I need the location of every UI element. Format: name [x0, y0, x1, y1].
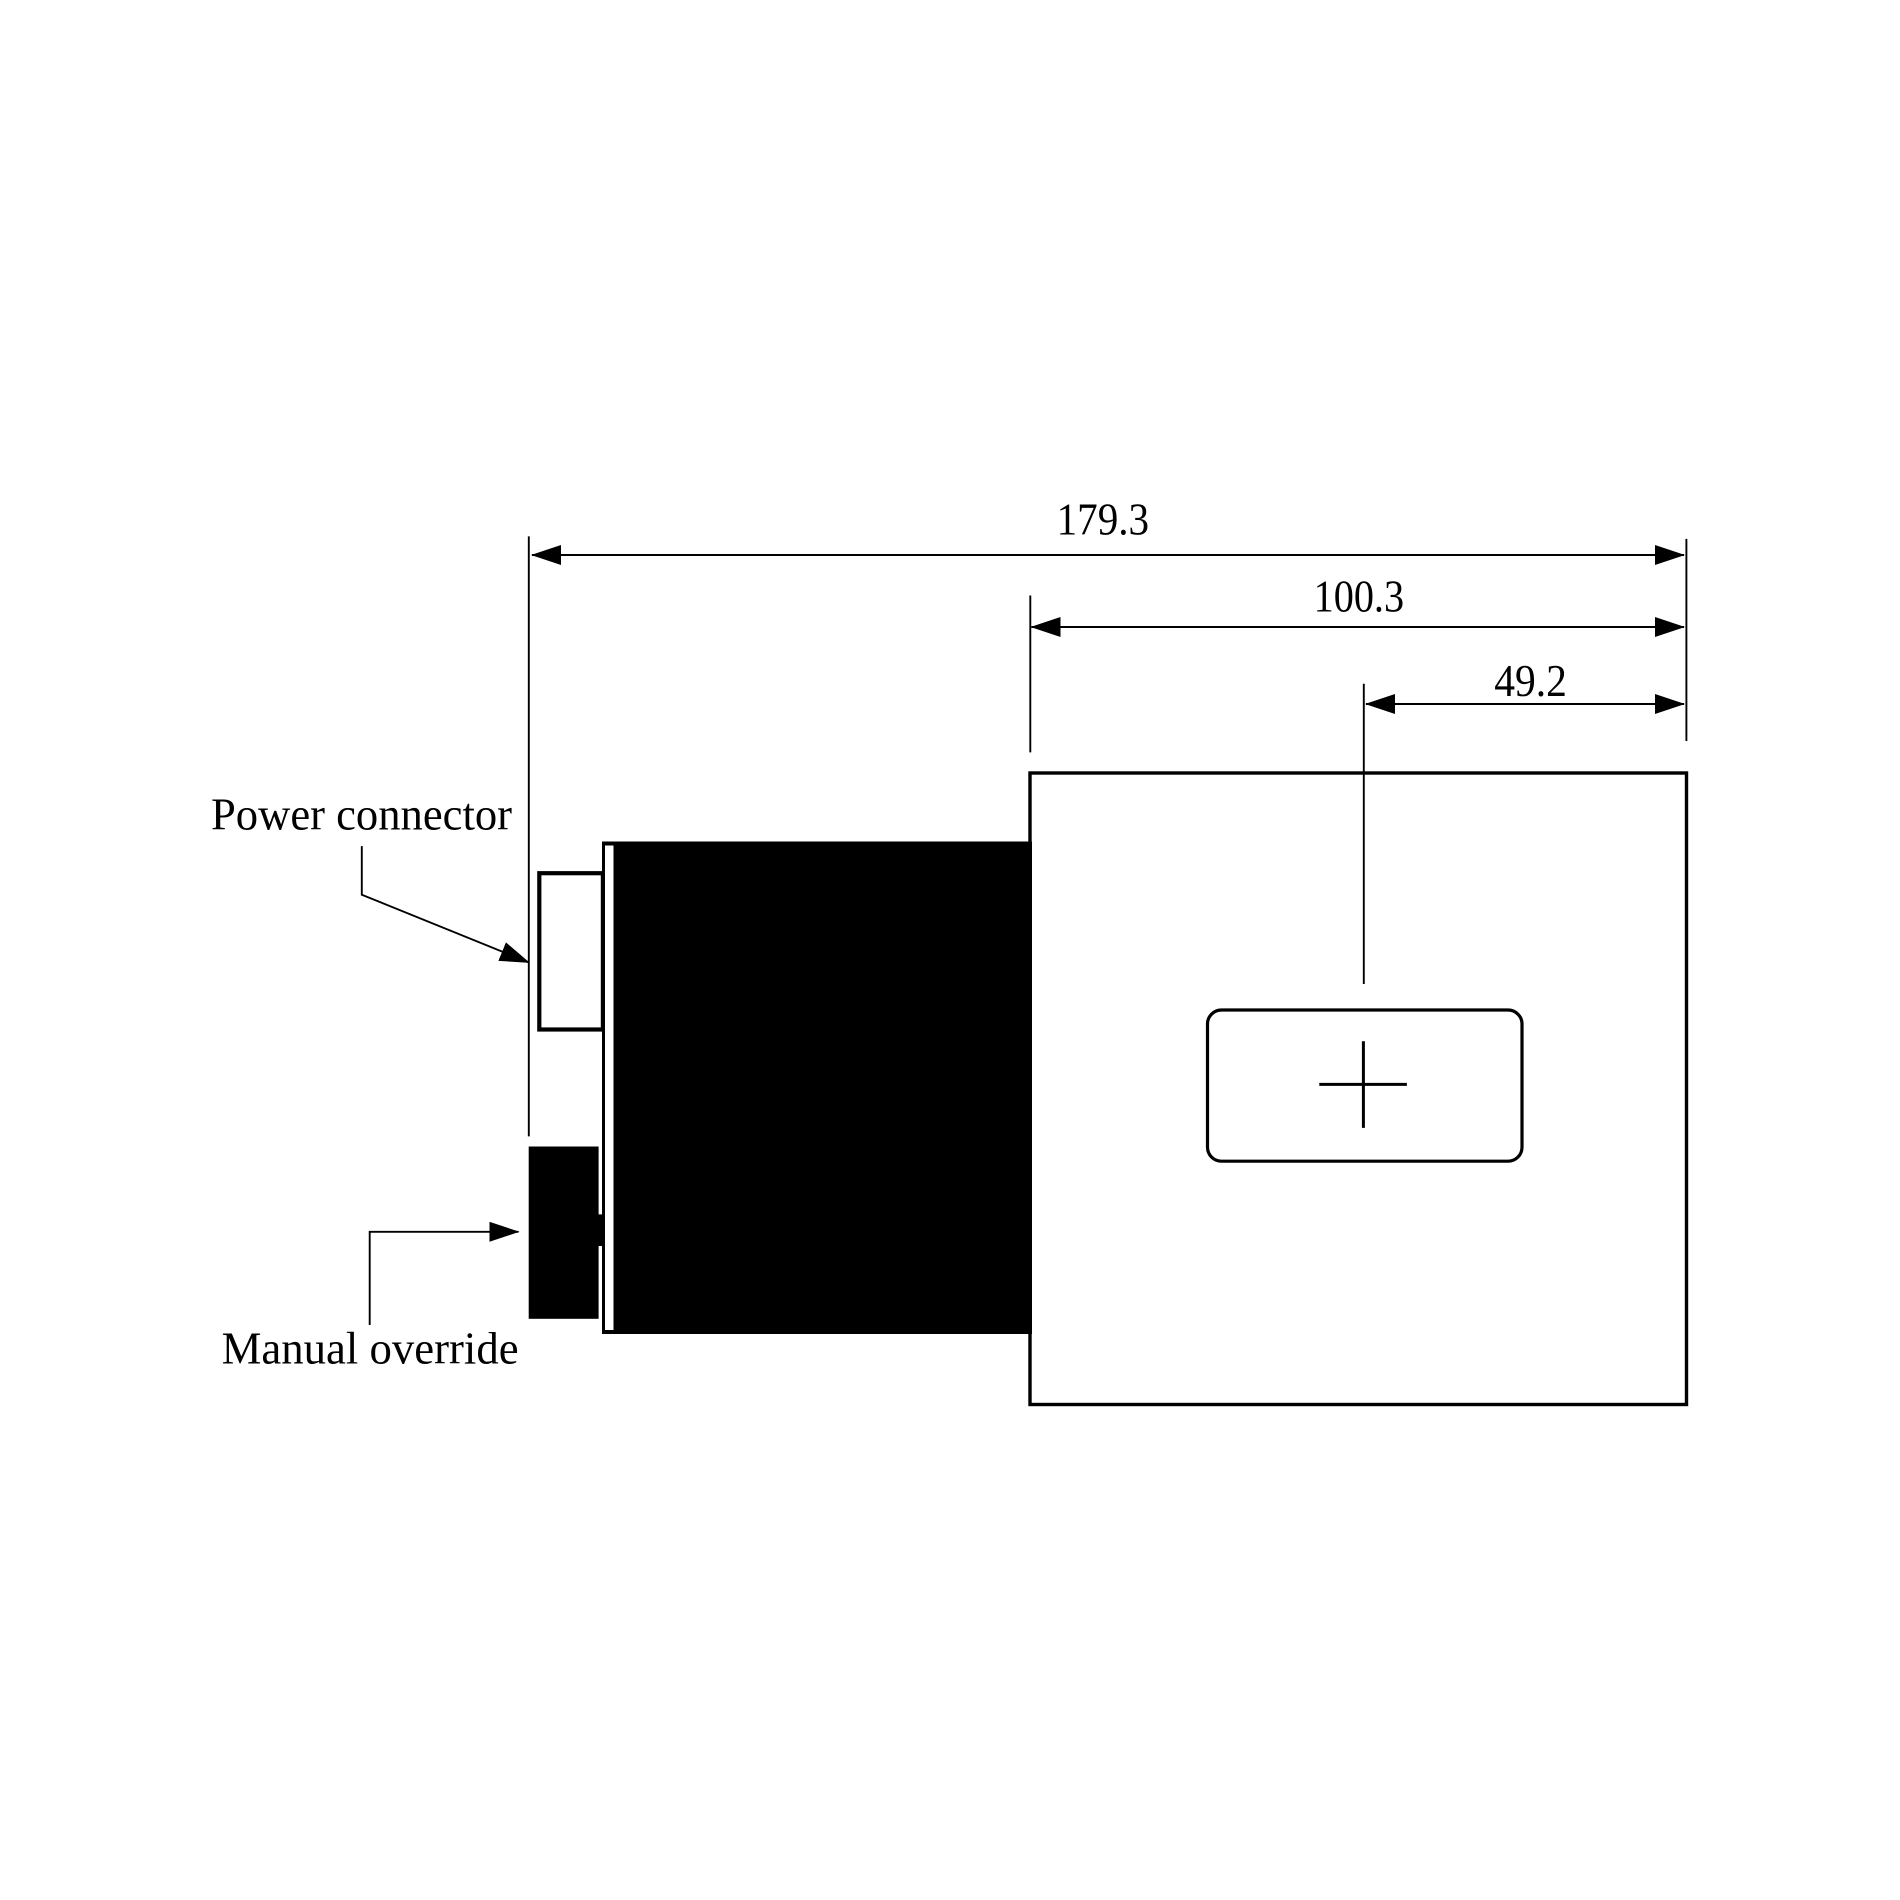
svg-text:179.3: 179.3	[1057, 494, 1150, 545]
svg-text:100.3: 100.3	[1314, 571, 1405, 622]
svg-text:Power connector: Power connector	[211, 789, 512, 840]
svg-text:Manual override: Manual override	[222, 1323, 519, 1374]
svg-text:49.2: 49.2	[1494, 655, 1567, 706]
